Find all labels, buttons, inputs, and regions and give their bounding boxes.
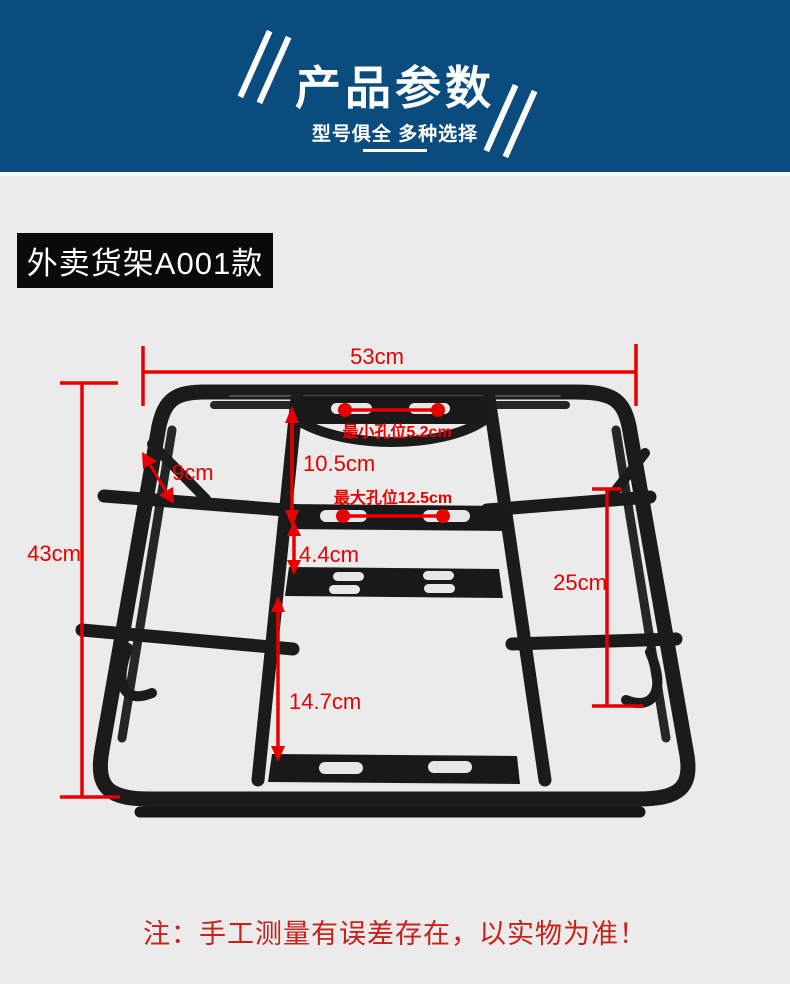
dimension-lower-gap: 14.7cm [271,596,361,762]
dimension-label-upper-gap: 10.5cm [303,451,375,476]
page: 产品参数 型号俱全 多种选择 外卖货架A001款 [0,0,790,984]
dimension-label-lower-gap: 14.7cm [289,689,361,714]
page-subtitle: 型号俱全 多种选择 [0,119,790,146]
dimension-label-top-width: 53cm [350,344,404,369]
measurement-note: 注：手工测量有误差存在，以实物为准！ [0,912,790,951]
page-title: 产品参数 [0,52,790,118]
dimension-label-left-height: 43cm [27,541,81,566]
product-figure: 53cm 最小孔位5.2cm 10.5cm 最大孔位12.5cm [0,320,790,820]
slash-decoration-right [492,82,544,160]
product-model-label: 外卖货架A001款 [17,233,273,288]
dimension-label-corner-brace: 9cm [172,460,214,485]
dimension-label-min-hole: 最小孔位5.2cm [342,422,451,441]
subtitle-underline [363,149,427,152]
dimension-label-right-height: 25cm [553,570,607,595]
dimension-label-plate-gap: 4.4cm [299,542,359,567]
dimension-label-max-hole: 最大孔位12.5cm [334,488,452,507]
dimension-max-hole: 最大孔位12.5cm [334,488,452,523]
header-banner: 产品参数 型号俱全 多种选择 [0,0,790,176]
rack-illustration [82,392,688,812]
